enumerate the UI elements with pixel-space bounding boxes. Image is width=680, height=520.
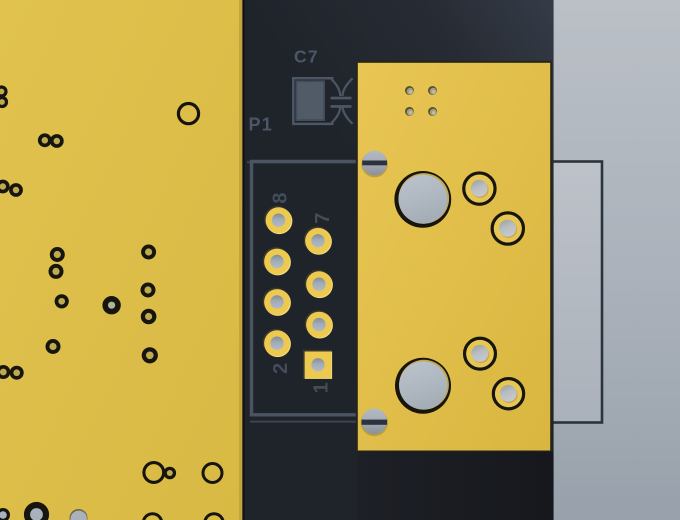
svg-text:P1: P1 [249,115,273,135]
svg-text:C7: C7 [294,47,319,67]
svg-text:2: 2 [270,363,292,374]
svg-text:1: 1 [310,382,332,393]
svg-text:7: 7 [312,213,334,224]
svg-text:8: 8 [270,193,292,204]
